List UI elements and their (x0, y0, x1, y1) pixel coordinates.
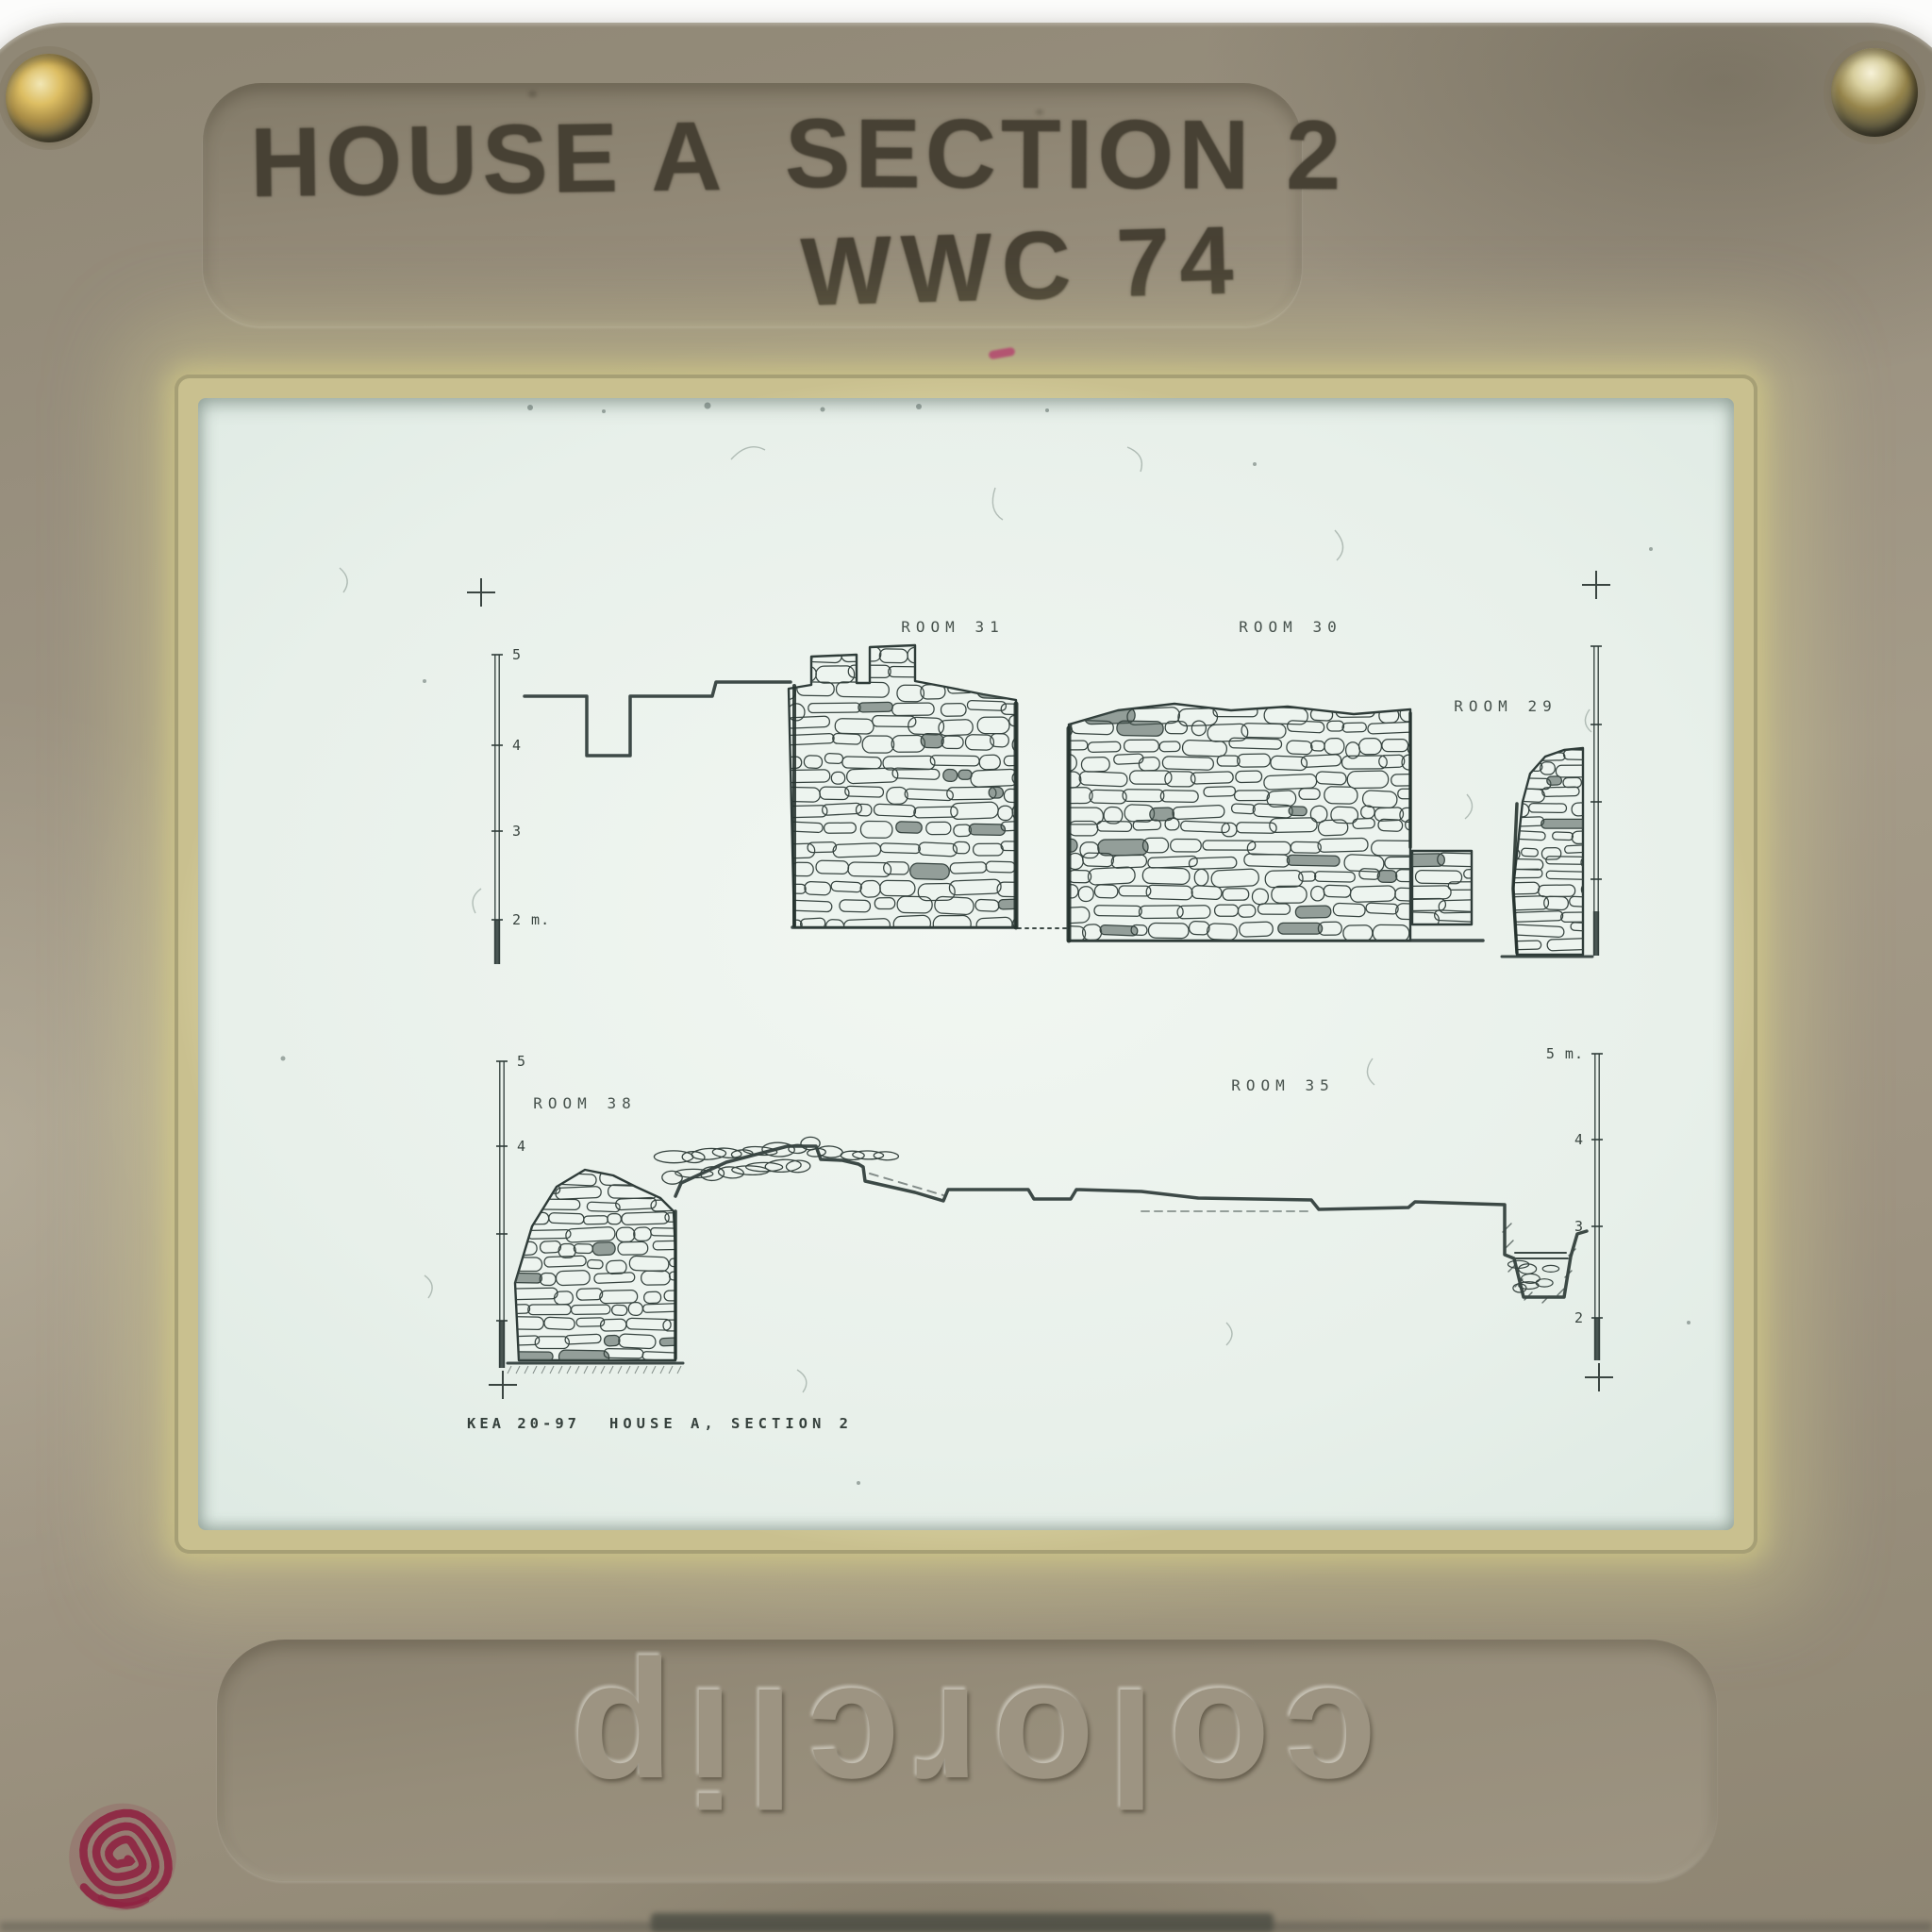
wall-room38 (496, 1170, 715, 1364)
slide-mount: HOUSE ASECTION 2 WWC 74 5432 m.545 m.432… (0, 23, 1932, 1932)
room-label: ROOM 30 (1239, 618, 1341, 636)
label-text-house: HOUSE A (249, 102, 727, 218)
scale-label: 3 (1574, 1218, 1584, 1235)
label-area: HOUSE ASECTION 2 WWC 74 (203, 83, 1302, 326)
scale-label: 5 (517, 1053, 526, 1070)
scale-label: 5 (512, 646, 522, 663)
mount-hole-left (6, 54, 92, 142)
scale-label: 5 m. (1546, 1045, 1584, 1062)
mount-hole-right (1831, 48, 1918, 137)
label-gap (726, 189, 785, 190)
scale-label: 3 (512, 823, 522, 840)
film-dust (281, 403, 1691, 1486)
wall-room30 (1048, 704, 1454, 941)
wall-room31 (771, 645, 1063, 934)
label-text-section: SECTION 2 (785, 98, 1345, 212)
room-label: ROOM 38 (533, 1094, 636, 1112)
photo-of-slide: HOUSE ASECTION 2 WWC 74 5432 m.545 m.432… (0, 0, 1932, 1932)
scale-label: 2 m. (512, 911, 550, 928)
film-transparency: 5432 m.545 m.432ROOM 31ROOM 30ROOM 29ROO… (198, 398, 1734, 1530)
room-label: ROOM 29 (1454, 697, 1557, 715)
bottom-right-scalebar: 5 m.432 (1546, 1045, 1603, 1360)
film-caption-code: KEA 20-97 (467, 1415, 580, 1432)
base-hatch (508, 1366, 681, 1374)
label-smudge-2 (1036, 109, 1043, 115)
mount-bottom-edge-shadow (651, 1913, 1274, 1932)
room-label: ROOM 35 (1231, 1076, 1334, 1094)
section-drawing: 5432 m.545 m.432ROOM 31ROOM 30ROOM 29ROO… (198, 398, 1734, 1530)
red-marker-scribble (52, 1790, 193, 1932)
handwritten-title: HOUSE ASECTION 2 (249, 92, 1346, 220)
scale-label: 4 (1574, 1131, 1584, 1148)
label-smudge-1 (528, 91, 537, 97)
brand-panel: colorclip (217, 1640, 1717, 1881)
film-aperture: 5432 m.545 m.432ROOM 31ROOM 30ROOM 29ROO… (175, 375, 1757, 1554)
scale-label: 2 (1574, 1309, 1584, 1326)
film-caption-title: HOUSE A, SECTION 2 (609, 1415, 853, 1432)
room-label: ROOM 31 (901, 618, 1004, 636)
scale-label: 4 (512, 737, 522, 754)
scale-label: 4 (517, 1138, 526, 1155)
top-right-scalebar (1591, 646, 1602, 956)
brand-logo: colorclip (217, 1651, 1717, 1841)
top-left-scalebar: 5432 m. (491, 646, 550, 964)
label-text-wwc: WWC 74 (799, 205, 1243, 327)
